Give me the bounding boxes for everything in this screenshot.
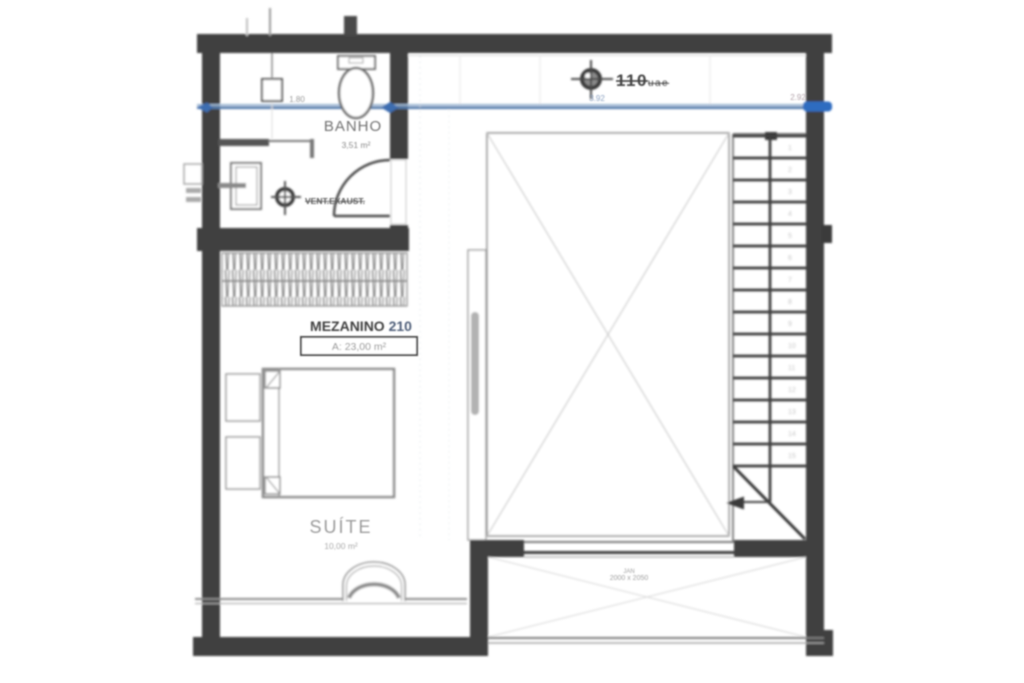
svg-text:VENT.EXAUST.: VENT.EXAUST.: [305, 196, 365, 206]
svg-text:15: 15: [788, 453, 796, 460]
svg-text:3: 3: [788, 189, 792, 196]
svg-text:10,00 m²: 10,00 m²: [324, 541, 358, 551]
svg-text:14: 14: [788, 431, 796, 438]
svg-text:MEZANINO 210: MEZANINO 210: [310, 318, 412, 334]
svg-text:1: 1: [788, 145, 792, 152]
svg-text:2000 x 2050: 2000 x 2050: [610, 575, 649, 582]
svg-text:13: 13: [788, 409, 796, 416]
svg-text:7: 7: [788, 277, 792, 284]
svg-text:12: 12: [788, 387, 796, 394]
svg-text:9: 9: [788, 321, 792, 328]
svg-text:A: 23,00 m²: A: 23,00 m²: [332, 341, 387, 353]
svg-text:3,51 m²: 3,51 m²: [342, 140, 371, 150]
svg-text:SUÍTE: SUÍTE: [309, 517, 372, 537]
svg-text:2.92: 2.92: [790, 93, 806, 102]
svg-text:8: 8: [788, 299, 792, 306]
svg-text:BANHO: BANHO: [324, 118, 382, 135]
svg-text:10: 10: [788, 343, 796, 350]
svg-text:3.92: 3.92: [589, 94, 605, 103]
svg-text:5: 5: [788, 233, 792, 240]
svg-text:1.80: 1.80: [289, 95, 305, 104]
svg-text:2: 2: [788, 167, 792, 174]
svg-text:4: 4: [788, 211, 792, 218]
svg-text:110uae: 110uae: [616, 71, 669, 90]
svg-text:11: 11: [788, 365, 795, 372]
svg-text:6: 6: [788, 255, 792, 262]
